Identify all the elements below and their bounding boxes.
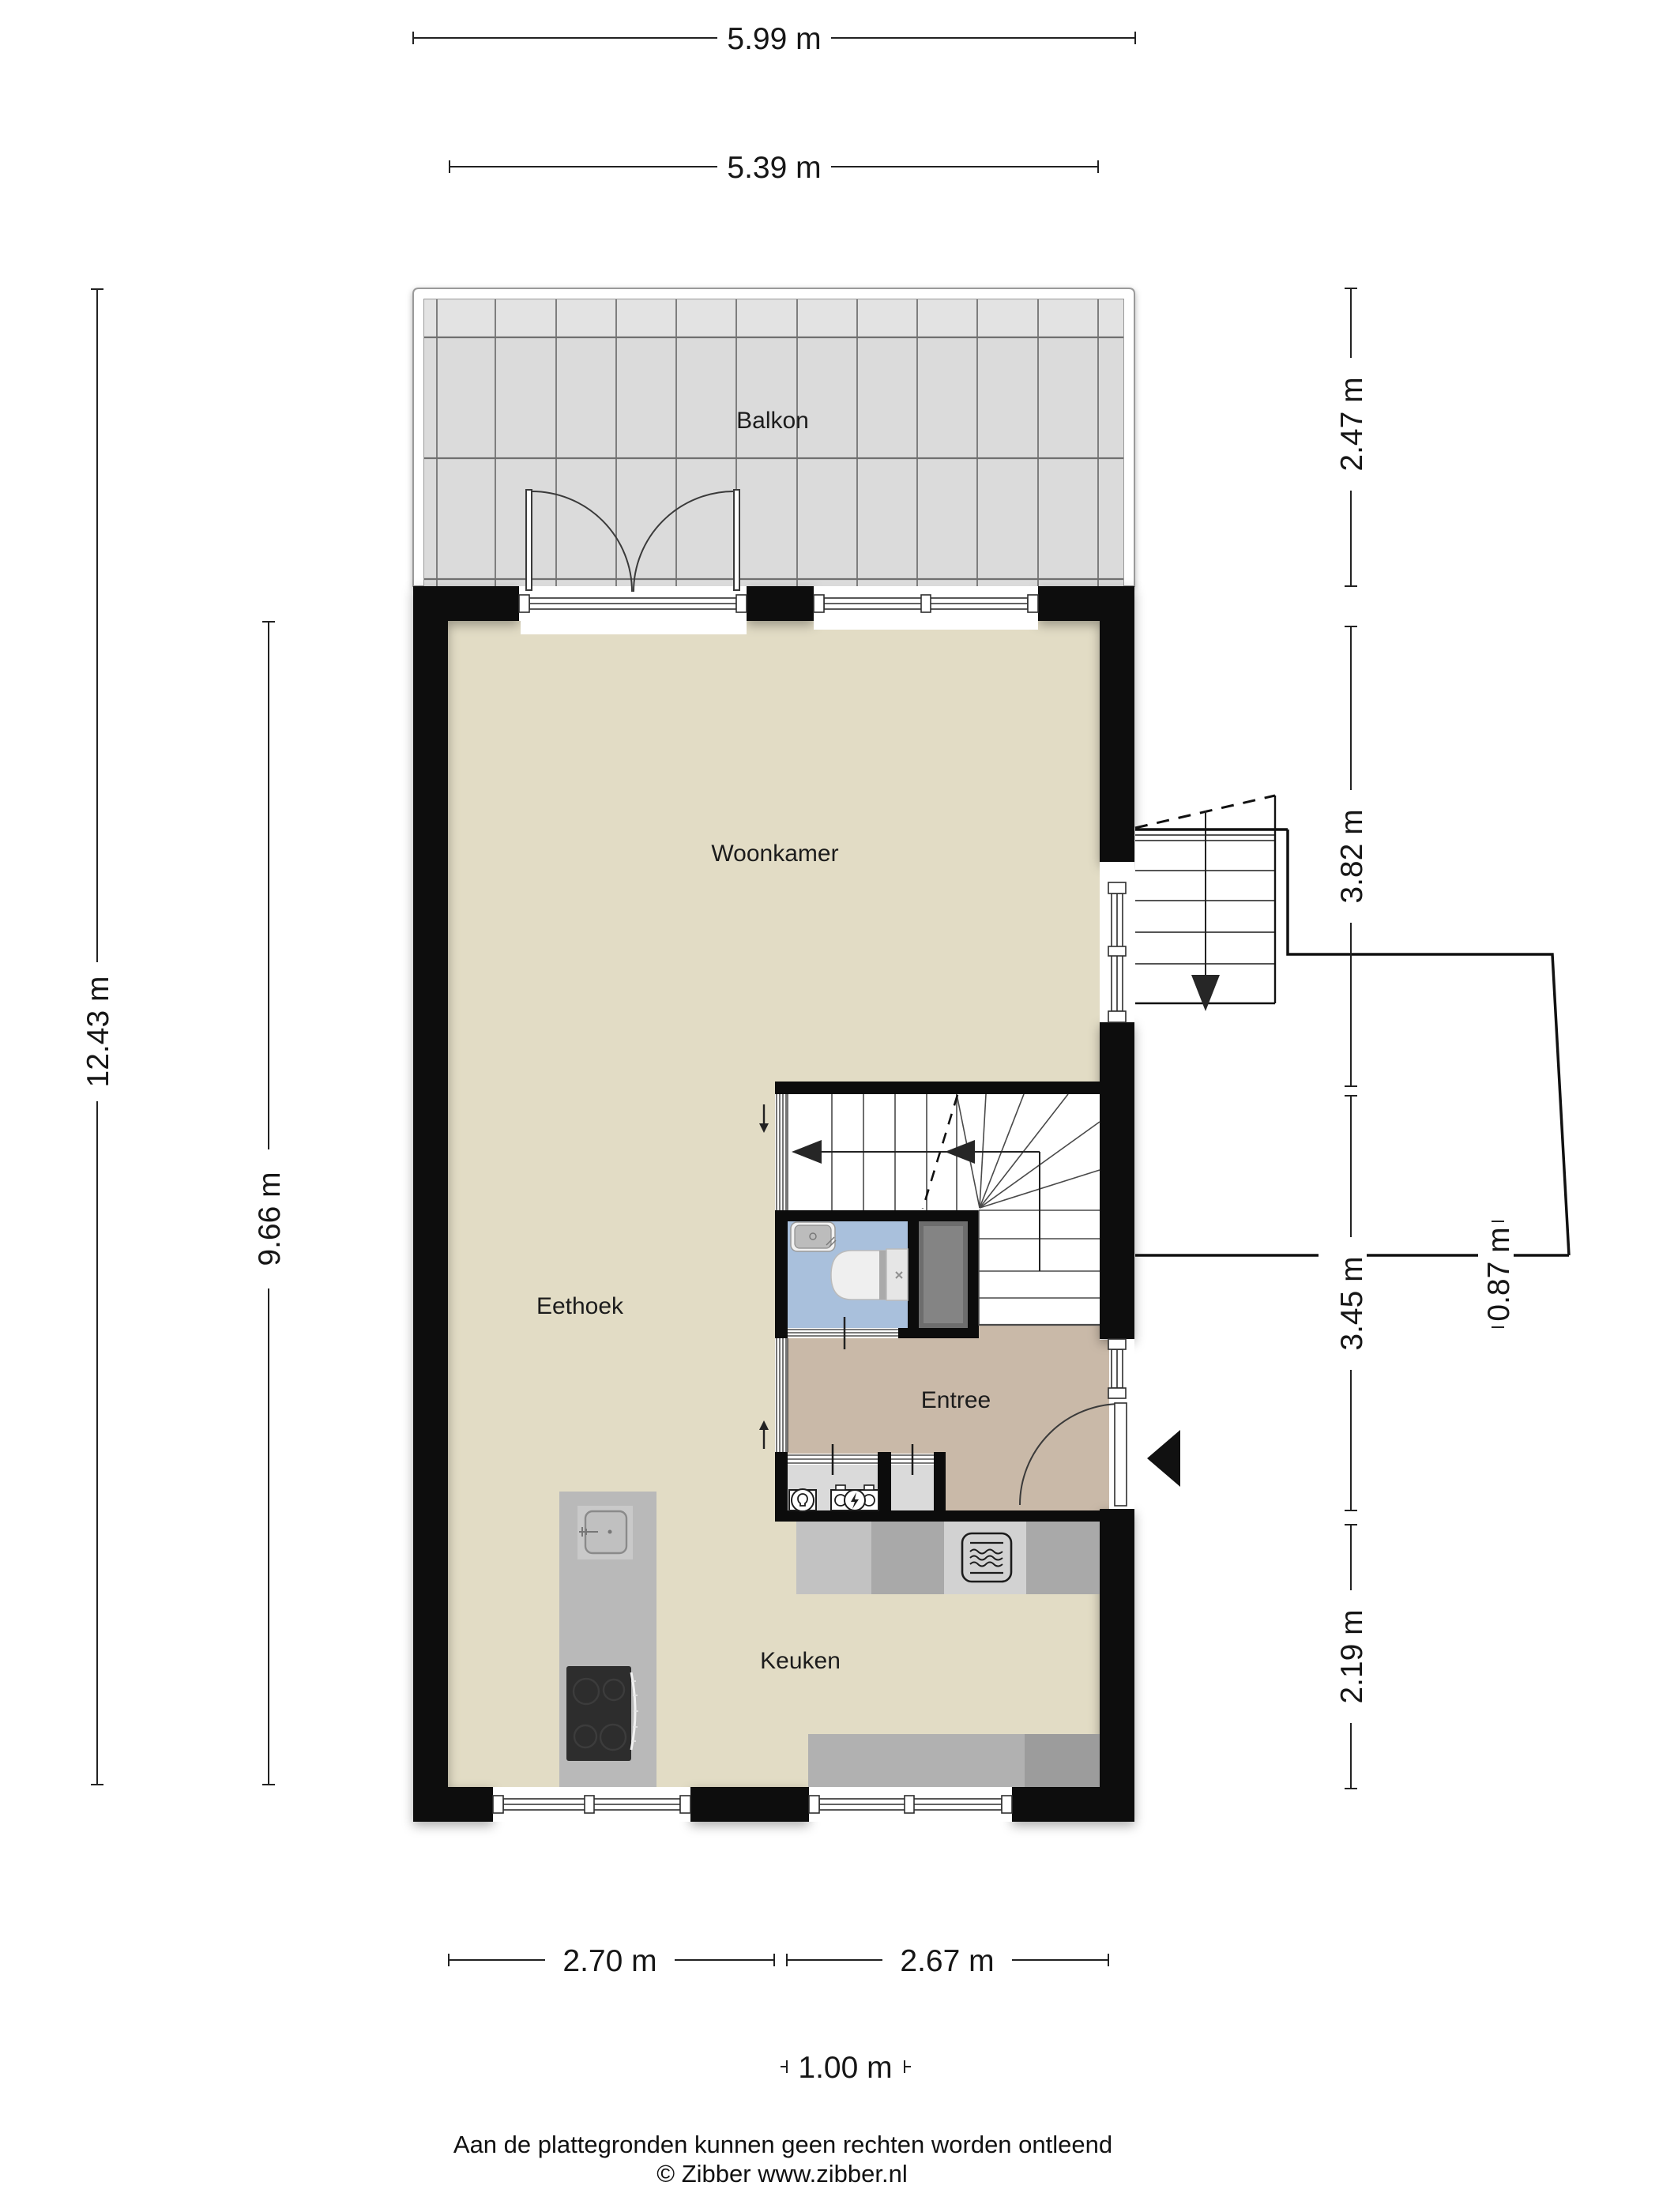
svg-text:2.67 m: 2.67 m bbox=[900, 1944, 994, 1978]
svg-text:Eethoek: Eethoek bbox=[536, 1293, 624, 1319]
svg-text:9.66 m: 9.66 m bbox=[253, 1172, 287, 1266]
svg-text:Balkon: Balkon bbox=[736, 408, 809, 434]
svg-text:Entree: Entree bbox=[921, 1387, 991, 1413]
svg-text:2.19 m: 2.19 m bbox=[1335, 1609, 1369, 1703]
svg-text:12.43 m: 12.43 m bbox=[81, 976, 115, 1088]
svg-text:3.82 m: 3.82 m bbox=[1335, 809, 1369, 903]
svg-text:Keuken: Keuken bbox=[760, 1648, 841, 1674]
svg-text:Woonkamer: Woonkamer bbox=[711, 841, 838, 867]
svg-text:Aan de plattegronden kunnen ge: Aan de plattegronden kunnen geen rechten… bbox=[453, 2131, 1112, 2158]
svg-text:2.47 m: 2.47 m bbox=[1335, 377, 1369, 471]
svg-text:5.99 m: 5.99 m bbox=[727, 22, 821, 56]
svg-text:2.70 m: 2.70 m bbox=[562, 1944, 656, 1978]
svg-text:© Zibber www.zibber.nl: © Zibber www.zibber.nl bbox=[656, 2160, 907, 2188]
svg-text:1.00 m: 1.00 m bbox=[798, 2051, 892, 2085]
svg-text:3.45 m: 3.45 m bbox=[1335, 1256, 1369, 1350]
svg-text:0.87 m: 0.87 m bbox=[1482, 1227, 1516, 1321]
svg-text:5.39 m: 5.39 m bbox=[727, 151, 821, 185]
